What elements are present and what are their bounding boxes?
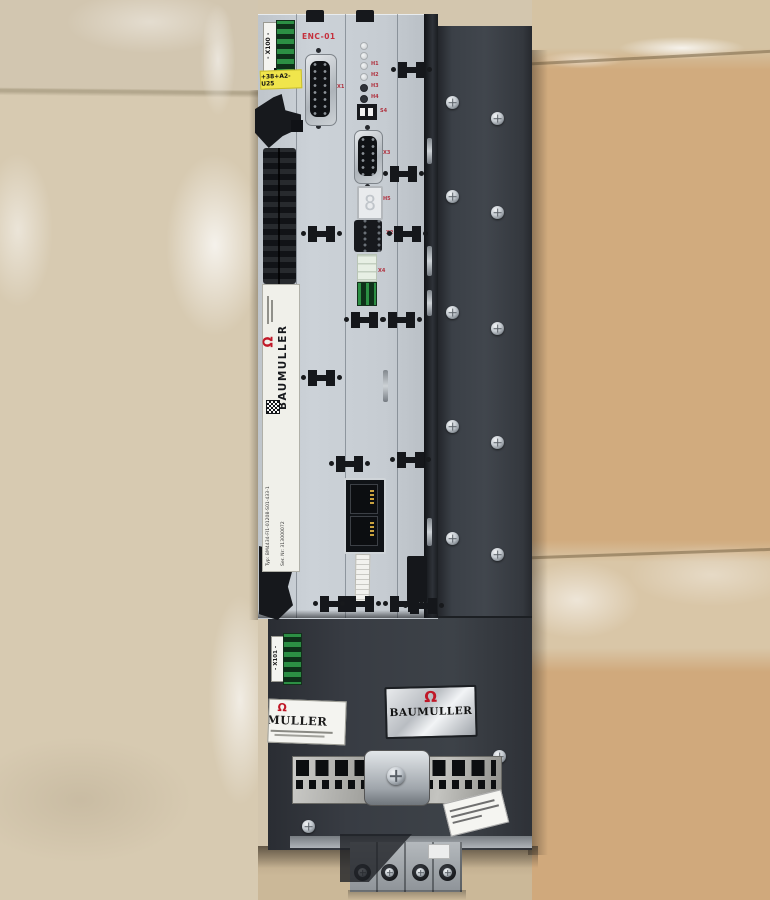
vent-slot [383,370,388,402]
connector-ref-label: X3 [383,150,390,156]
connector-ref-label: X1 [337,84,344,90]
screw-icon [446,532,459,545]
vent-slot [427,518,432,546]
equipment-tag-text: +38+A2-U25 [261,72,301,87]
dsub-15pin-face [310,61,330,117]
vent-slot [427,138,432,164]
latch-clip [388,312,415,328]
pin-socket [354,220,382,252]
nameplate-brand-text: BAUMULLER [387,705,475,719]
x101-label-text: - X101 - [273,637,282,679]
enc-module-title: ENC-01 [302,32,344,42]
latch-clip [308,370,335,386]
baumueller-nameplate: Ω BAUMULLER [384,685,477,739]
terminal-shadow [348,890,466,900]
terminal-screw-icon [416,868,425,877]
led-label: H2 [371,72,379,78]
edge-tab [306,10,324,22]
screw-icon [491,548,504,561]
vent-slot [427,290,432,316]
x101-terminal-connector [283,633,302,685]
header-strip [357,254,377,282]
x100-label: - X100 - [263,22,277,72]
microtext-bar [275,734,325,737]
terminal-screw-icon [443,868,452,877]
device-shadow-left [249,90,258,620]
status-led [360,42,368,50]
screw-icon [491,206,504,219]
latch-clip [390,166,417,182]
led-label: H3 [371,83,379,89]
terminal-label: X4 [378,268,385,274]
display-digit: 8 [364,191,376,215]
equipment-tag: +38+A2-U25 [260,69,303,89]
brand-text-vertical: BAUMULLER [277,292,293,410]
screw-icon [491,112,504,125]
led-label: H1 [371,61,379,67]
status-led [360,95,368,103]
status-led [360,62,368,70]
dsub-mount-hole [316,48,321,53]
partial-baumueller-plate: Ω MULLER [267,699,346,746]
edge-tab [356,10,374,22]
latch-clip [347,596,374,612]
latch-clip [336,456,363,472]
screw-icon [302,820,315,833]
screw-icon [446,190,459,203]
latch-clip [394,226,421,242]
dip-switch-label: S4 [380,108,387,114]
baumueller-logo-icon: Ω [386,687,474,707]
bracket-block [291,120,303,132]
ethernet-contacts [370,490,374,506]
serial-number-text: Ser. Nr: 313000072 [281,468,290,566]
screw-icon [446,96,459,109]
latch-clip [398,62,425,78]
display-label: H5 [383,196,391,202]
backplane-connector [263,148,296,284]
terminal-marker-label [428,844,450,859]
x4-terminal-connector [357,282,377,306]
latch-clip [397,452,424,468]
screw-icon [491,436,504,449]
datamatrix-code [266,400,280,414]
latch-clip [351,312,378,328]
status-led [360,52,368,60]
ethernet-contacts [370,522,374,538]
led-label: H4 [371,94,379,100]
x100-label-text: - X100 - [265,23,274,69]
photo-scene: - X100 - +38+A2-U25 ENC-01 X1 H1 H2 H3 H… [0,0,770,900]
clamp-screw-icon [387,767,405,785]
vent-slot [427,246,432,276]
x100-terminal-connector [276,20,295,72]
microtext-bar [271,300,273,322]
terminal-screw-icon [385,868,394,877]
status-led [360,84,368,92]
latch-clip [410,598,437,614]
microtext-bar [267,296,269,324]
partial-brand-text: MULLER [267,713,327,729]
type-number-text: Typ: BM4434-FI1-01208-S01-433-1 [266,436,275,566]
floor-tile-left [0,0,258,900]
floor-tile-right [532,0,770,900]
screw-icon [446,420,459,433]
screw-icon [491,322,504,335]
screw-icon [446,306,459,319]
dsub-9pin-face [358,136,377,176]
dip-switch [357,104,377,120]
status-led [360,73,368,81]
seven-segment-display: 8 [357,186,383,220]
latch-clip [308,226,335,242]
baumueller-logo-icon: Ω [262,335,280,348]
